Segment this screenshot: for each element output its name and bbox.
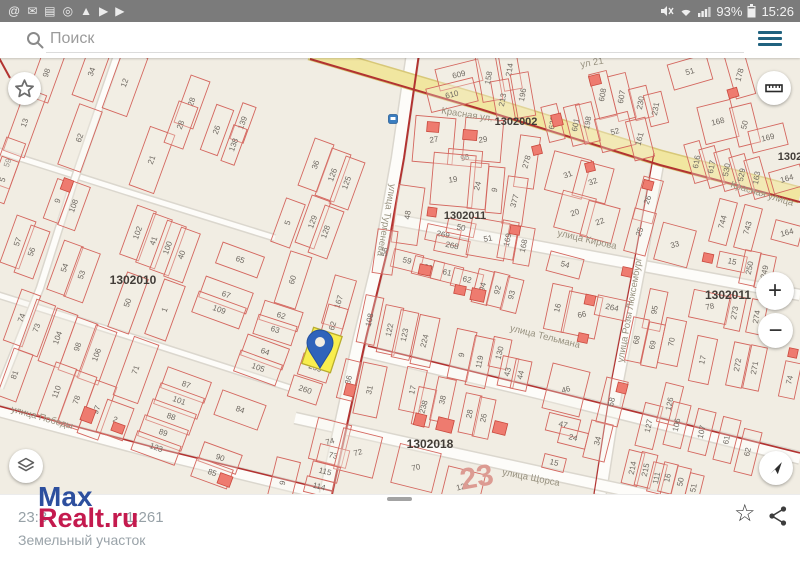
parcel-number: 27 bbox=[429, 134, 440, 144]
signal-icon bbox=[698, 6, 711, 17]
map-canvas[interactable]: 9834121362212828261391385959108102411004… bbox=[0, 58, 800, 494]
building bbox=[427, 207, 437, 217]
building bbox=[454, 284, 467, 295]
menu-button[interactable] bbox=[758, 31, 782, 49]
parcel-number: 29 bbox=[478, 134, 489, 144]
zoom-out-button[interactable]: − bbox=[758, 313, 793, 348]
locate-button[interactable] bbox=[759, 451, 793, 485]
share-icon[interactable] bbox=[768, 505, 788, 527]
cadastral-number-tail: 1:261 bbox=[126, 509, 164, 526]
object-type-label: Земельный участок bbox=[18, 532, 145, 548]
parcel-number: 19 bbox=[448, 174, 459, 184]
building bbox=[470, 288, 486, 303]
plus-icon: + bbox=[768, 279, 782, 303]
building bbox=[616, 382, 628, 394]
favorite-toggle[interactable]: ☆ bbox=[734, 502, 756, 526]
transit-stop-glyph bbox=[391, 117, 396, 120]
app-window: @✉▤◎▲▶▶ 93% 15:26 bbox=[0, 0, 800, 561]
notification-icons: @✉▤◎▲▶▶ bbox=[0, 4, 124, 18]
minus-icon: − bbox=[768, 319, 782, 343]
ruler-icon bbox=[764, 78, 784, 98]
clock: 15:26 bbox=[761, 4, 794, 19]
building bbox=[532, 145, 543, 156]
quarter-number: 1302 bbox=[778, 151, 800, 163]
pin-hole bbox=[315, 337, 325, 347]
building bbox=[418, 264, 432, 276]
bottom-sheet-handle[interactable] bbox=[387, 497, 412, 501]
building bbox=[585, 162, 596, 173]
search-icon bbox=[26, 31, 44, 49]
zoom-in-button[interactable]: + bbox=[756, 272, 794, 310]
mute-icon bbox=[660, 5, 674, 17]
search-bar: Поиск bbox=[0, 22, 800, 58]
building bbox=[463, 129, 478, 140]
page-icon: ▤ bbox=[44, 4, 55, 18]
building bbox=[509, 225, 520, 236]
building bbox=[492, 421, 508, 436]
quarter-number: 1302011 bbox=[705, 288, 751, 302]
battery-icon bbox=[747, 4, 756, 18]
search-input[interactable]: Поиск bbox=[50, 30, 94, 48]
at-icon: @ bbox=[8, 4, 20, 18]
bottom-sheet: 23:3 1:261 Земельный участок ☆ bbox=[0, 494, 800, 561]
ruler-button[interactable] bbox=[757, 71, 791, 105]
building bbox=[427, 121, 440, 132]
parcel-number: 48 bbox=[403, 209, 413, 220]
quarter-number: 23 bbox=[457, 458, 496, 494]
status-bar: @✉▤◎▲▶▶ 93% 15:26 bbox=[0, 0, 800, 22]
warning-icon: ▲ bbox=[80, 4, 92, 18]
star-icon bbox=[14, 78, 35, 99]
mail-icon: ✉ bbox=[27, 4, 37, 18]
layers-icon bbox=[16, 456, 36, 476]
layers-button[interactable] bbox=[9, 449, 43, 483]
cadastral-number: 23:3 bbox=[18, 509, 47, 526]
battery-percent: 93% bbox=[716, 4, 742, 19]
flag-icon-2: ▶ bbox=[115, 4, 124, 18]
target-icon: ◎ bbox=[63, 4, 73, 18]
quarter-number: 1302002 bbox=[495, 116, 538, 128]
quarter-number: 1302010 bbox=[110, 273, 157, 287]
building bbox=[413, 413, 427, 427]
building bbox=[702, 253, 714, 264]
search-underline bbox=[46, 52, 744, 53]
wifi-icon bbox=[679, 6, 693, 17]
status-right: 93% 15:26 bbox=[660, 4, 800, 19]
flag-icon: ▶ bbox=[99, 4, 108, 18]
compass-arrow-icon bbox=[767, 459, 785, 477]
building bbox=[588, 74, 601, 86]
building bbox=[584, 294, 596, 306]
favorites-button[interactable] bbox=[8, 72, 41, 105]
building bbox=[788, 348, 799, 359]
quarter-number: 1302011 bbox=[444, 210, 486, 222]
quarter-number: 1302018 bbox=[407, 437, 454, 451]
